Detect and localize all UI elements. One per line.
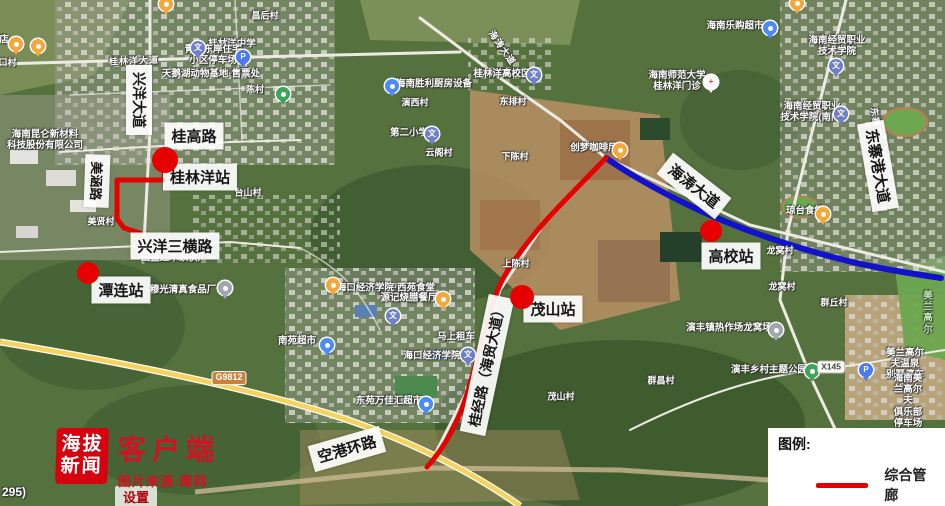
poi-marker-school: 文 (191, 41, 205, 55)
shop-icon (390, 84, 395, 89)
parking-icon: P (863, 366, 868, 374)
client-label: 客户端 (118, 428, 220, 468)
food-icon (164, 2, 169, 7)
poi-marker-park (276, 87, 290, 101)
station-dot-桂林洋站 (152, 147, 178, 173)
village-label: 下陈村 (501, 152, 528, 163)
poi-marker-shop (419, 397, 433, 411)
poi-label: 海口经济学院 (403, 350, 460, 361)
village-label: 美贤村 (87, 217, 114, 228)
legend-title: 图例: (778, 434, 935, 454)
poi-label: 海南胜利厨房设备 (396, 78, 472, 89)
poi-label: 南苑超市 (278, 335, 316, 346)
poi-marker-food (816, 207, 830, 221)
school-icon: 文 (530, 71, 538, 79)
legend-panel: 图例: 综合管廊 电缆沟 (768, 428, 945, 506)
poi-label: 海南乐购超市 (706, 20, 763, 31)
poi-label: 穆光清真食品厂 (150, 284, 217, 295)
place-icon (774, 328, 779, 333)
food-icon (36, 44, 41, 49)
school-icon: 文 (194, 44, 202, 52)
road-shield: G9812 (211, 371, 246, 385)
village-label: 龙窝村 (768, 282, 795, 293)
school-icon: 文 (832, 62, 840, 70)
school-icon: 文 (837, 110, 845, 118)
haiba-news-logo: 海拔 新闻 (55, 428, 109, 484)
school-icon: 文 (428, 130, 436, 138)
park-icon (281, 92, 286, 97)
village-label: 群丘村 (820, 298, 847, 309)
poi-label: 马上租车 (437, 331, 475, 342)
logo-line2: 新闻 (60, 456, 103, 478)
food-icon (441, 297, 446, 302)
place-icon (223, 286, 228, 291)
poi-marker-food (31, 39, 45, 53)
map-annotation-label: 兴洋三横路 (130, 233, 219, 260)
brand-text-block: 客户端 图片来源:椰网 (118, 428, 220, 490)
school-icon: 文 (389, 312, 397, 320)
poi-marker-food (326, 278, 340, 292)
poi-label: 源记烧腊餐厅 (380, 292, 437, 303)
poi-label: 海南师范大学 桂林洋门诊 (648, 70, 705, 92)
station-dot-高校站 (700, 220, 722, 242)
legend-item-corridor: 综合管廊 (778, 465, 935, 505)
poi-label: 海南美兰高尔夫 俱乐部停车场 (890, 373, 927, 429)
poi-label: 演丰镇热作场龙窝场 (686, 322, 772, 333)
village-label: 昌后村 (251, 11, 278, 22)
shop-icon (424, 402, 429, 407)
village-label: 龙窝村 (766, 246, 793, 257)
poi-marker-school: 文 (461, 348, 475, 362)
road-name-label: 海涛大道 (486, 29, 518, 68)
map-annotation-label: 海涛大道 (657, 153, 732, 220)
poi-label: 美兰高尔 (920, 291, 937, 336)
village-label: 上陈村 (502, 259, 529, 270)
food-icon (14, 42, 19, 47)
village-label: 塘口村 (0, 58, 17, 69)
station-dot-潭连站 (77, 262, 99, 284)
logo-line1: 海拔 (61, 434, 104, 456)
map-annotation-label: 桂高路 (164, 123, 223, 150)
shop-icon (768, 26, 773, 31)
parking-icon: P (240, 53, 245, 61)
station-dot-茂山站 (510, 285, 534, 309)
poi-marker-school: 文 (829, 59, 843, 73)
poi-marker-food (790, 0, 804, 10)
poi-marker-shop (763, 21, 777, 35)
village-label: 群昌村 (647, 376, 674, 387)
poi-marker-school: 文 (527, 68, 541, 82)
poi-marker-hospital: + (704, 75, 718, 89)
poi-marker-food (436, 292, 450, 306)
park-icon (810, 369, 815, 374)
village-label: 云阁村 (425, 148, 452, 159)
image-source-label: 图片来源:椰网 (118, 471, 220, 490)
poi-label: 桂林洋高校区 (473, 68, 530, 79)
map-annotation-label: 高校站 (701, 243, 760, 270)
poi-marker-food (9, 37, 23, 51)
village-label: 茂山村 (547, 392, 574, 403)
map-annotation-label: 兴洋大道 (126, 65, 152, 135)
poi-marker-parking: P (236, 50, 250, 64)
corridor-line-label: 综合管廊 (884, 465, 935, 505)
poi-marker-food (613, 143, 627, 157)
food-icon (821, 212, 826, 217)
map-annotation-label: 潭连站 (91, 277, 150, 304)
poi-label: 店 (0, 34, 9, 45)
corridor-line-swatch (816, 483, 868, 488)
food-icon (618, 148, 623, 153)
map-annotation-label: 空港环路 (308, 426, 387, 472)
partial-road-ref-text: 295) (2, 485, 26, 499)
map-annotation-label: 东寨港大道 (857, 120, 899, 212)
poi-marker-place (769, 323, 783, 337)
village-label: 陈村 (246, 85, 264, 96)
school-icon: 文 (464, 351, 472, 359)
poi-marker-shop (320, 338, 334, 352)
news-watermark: 海拔 新闻 客户端 图片来源:椰网 (56, 428, 220, 490)
poi-label: 第二小学 (390, 127, 428, 138)
poi-marker-parking: P (859, 363, 873, 377)
village-label: 演西村 (401, 98, 428, 109)
poi-label: 演丰乡村主题公园 (731, 364, 807, 375)
poi-marker-food (159, 0, 173, 11)
poi-label: 海南经贸职业 技术学院 (808, 35, 865, 57)
poi-label: 创梦咖啡厅 (570, 142, 618, 153)
shop-icon (325, 343, 330, 348)
food-icon (331, 283, 336, 288)
poi-marker-school: 文 (425, 127, 439, 141)
poi-marker-school: 文 (386, 309, 400, 323)
road-shield: X145 (817, 360, 845, 373)
food-icon (795, 1, 800, 6)
news-map-image: 昌后村塘口村陈村台山村美贤村演西村东排村下陈村云阁村上陈村茂山村群昌村群丘村龙窝… (0, 0, 945, 506)
poi-label: 东苑万佳汇超市 (356, 395, 423, 406)
poi-marker-shop (385, 79, 399, 93)
poi-marker-school: 文 (834, 107, 848, 121)
poi-marker-place (218, 281, 232, 295)
map-annotation-label: 美涵路 (84, 154, 111, 208)
hospital-icon: + (709, 78, 714, 86)
village-label: 台山村 (234, 188, 261, 199)
village-label: 东排村 (499, 97, 526, 108)
poi-label: 海南昆仑新材料 科技股份有限公司 (7, 129, 83, 151)
